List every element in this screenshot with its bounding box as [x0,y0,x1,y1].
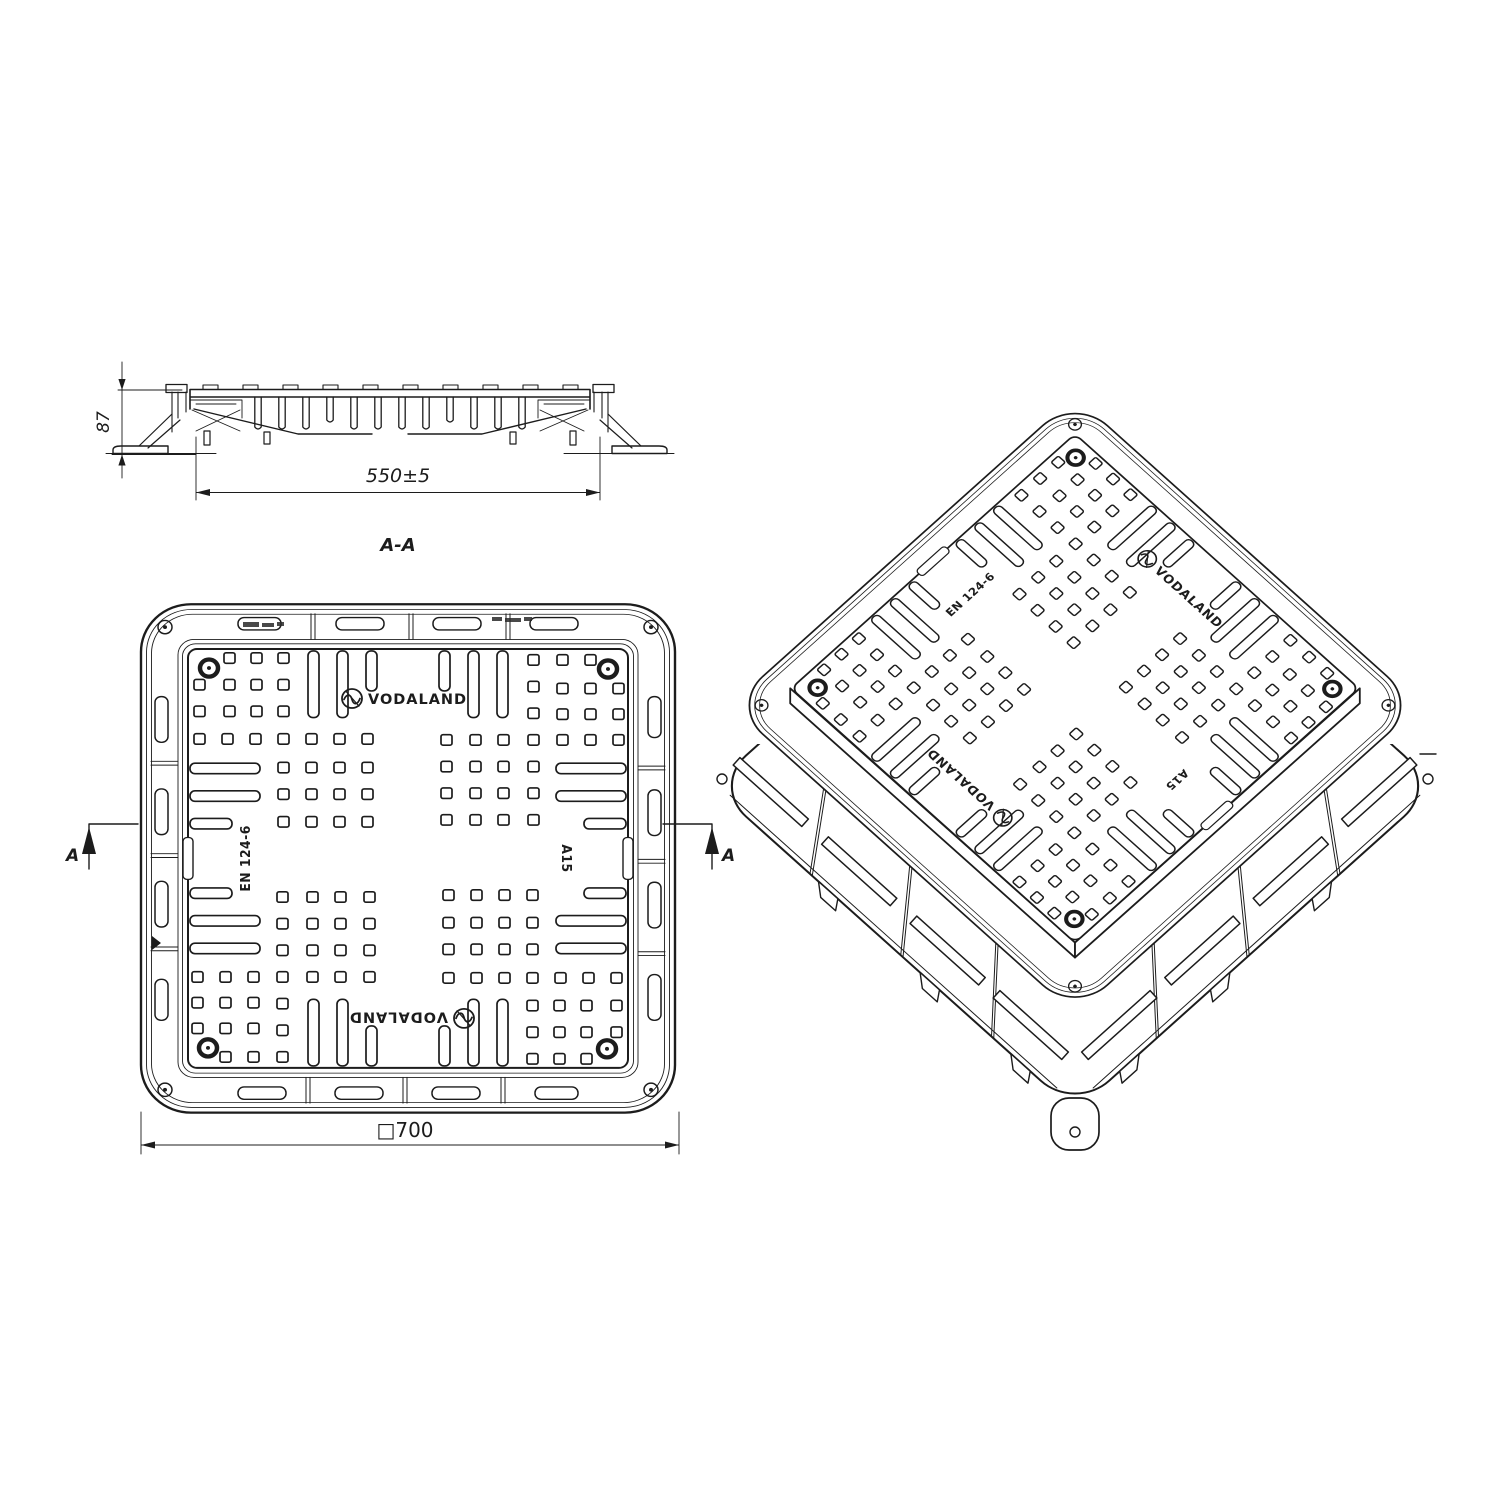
cover-rib [423,397,429,429]
dim-700: □700 [141,1112,679,1154]
dim-arrow [118,455,125,466]
dim-arrow [665,1142,679,1149]
dim-550: 550±5 [196,437,600,500]
isometric-view [712,397,1438,1150]
technical-drawing: VODALAND EN 124-6 A15 [0,0,1500,1500]
dim-arrow [141,1142,155,1149]
section-title: A-A [378,535,415,556]
bottom-corner-foot [1051,1098,1099,1150]
cut-arrow-icon [705,827,719,854]
cover-rib [471,397,477,429]
plan-view: A A □700 [64,604,735,1154]
cover-rib [279,397,285,429]
cut-label: A [720,846,735,866]
dim-arrow [118,379,125,390]
cut-label: A [64,846,79,866]
frame-section-left [106,385,372,454]
cover-rib [303,397,309,429]
cover-rib [399,397,405,429]
dim-arrow [586,489,600,496]
section-view: 87 550±5 A-A [94,362,674,556]
cut-arrow-icon [82,827,96,854]
cover-rib [327,397,333,422]
cover-rib [375,397,381,429]
dim-87: 87 [94,362,196,478]
cover-rib [351,397,357,429]
ear-hole [1423,774,1433,784]
height-dim-label: 87 [94,411,114,433]
ear-hole [717,774,727,784]
drawing-sheet: VODALAND EN 124-6 A15 [0,0,1500,1500]
cut-arrow-left: A [64,824,138,869]
cover-rib [495,397,501,429]
overall-dim-label: □700 [376,1118,433,1142]
width-dim-label: 550±5 [366,465,430,487]
cover-rib [447,397,453,422]
dim-arrow [196,489,210,496]
cover-ribs [255,397,525,429]
